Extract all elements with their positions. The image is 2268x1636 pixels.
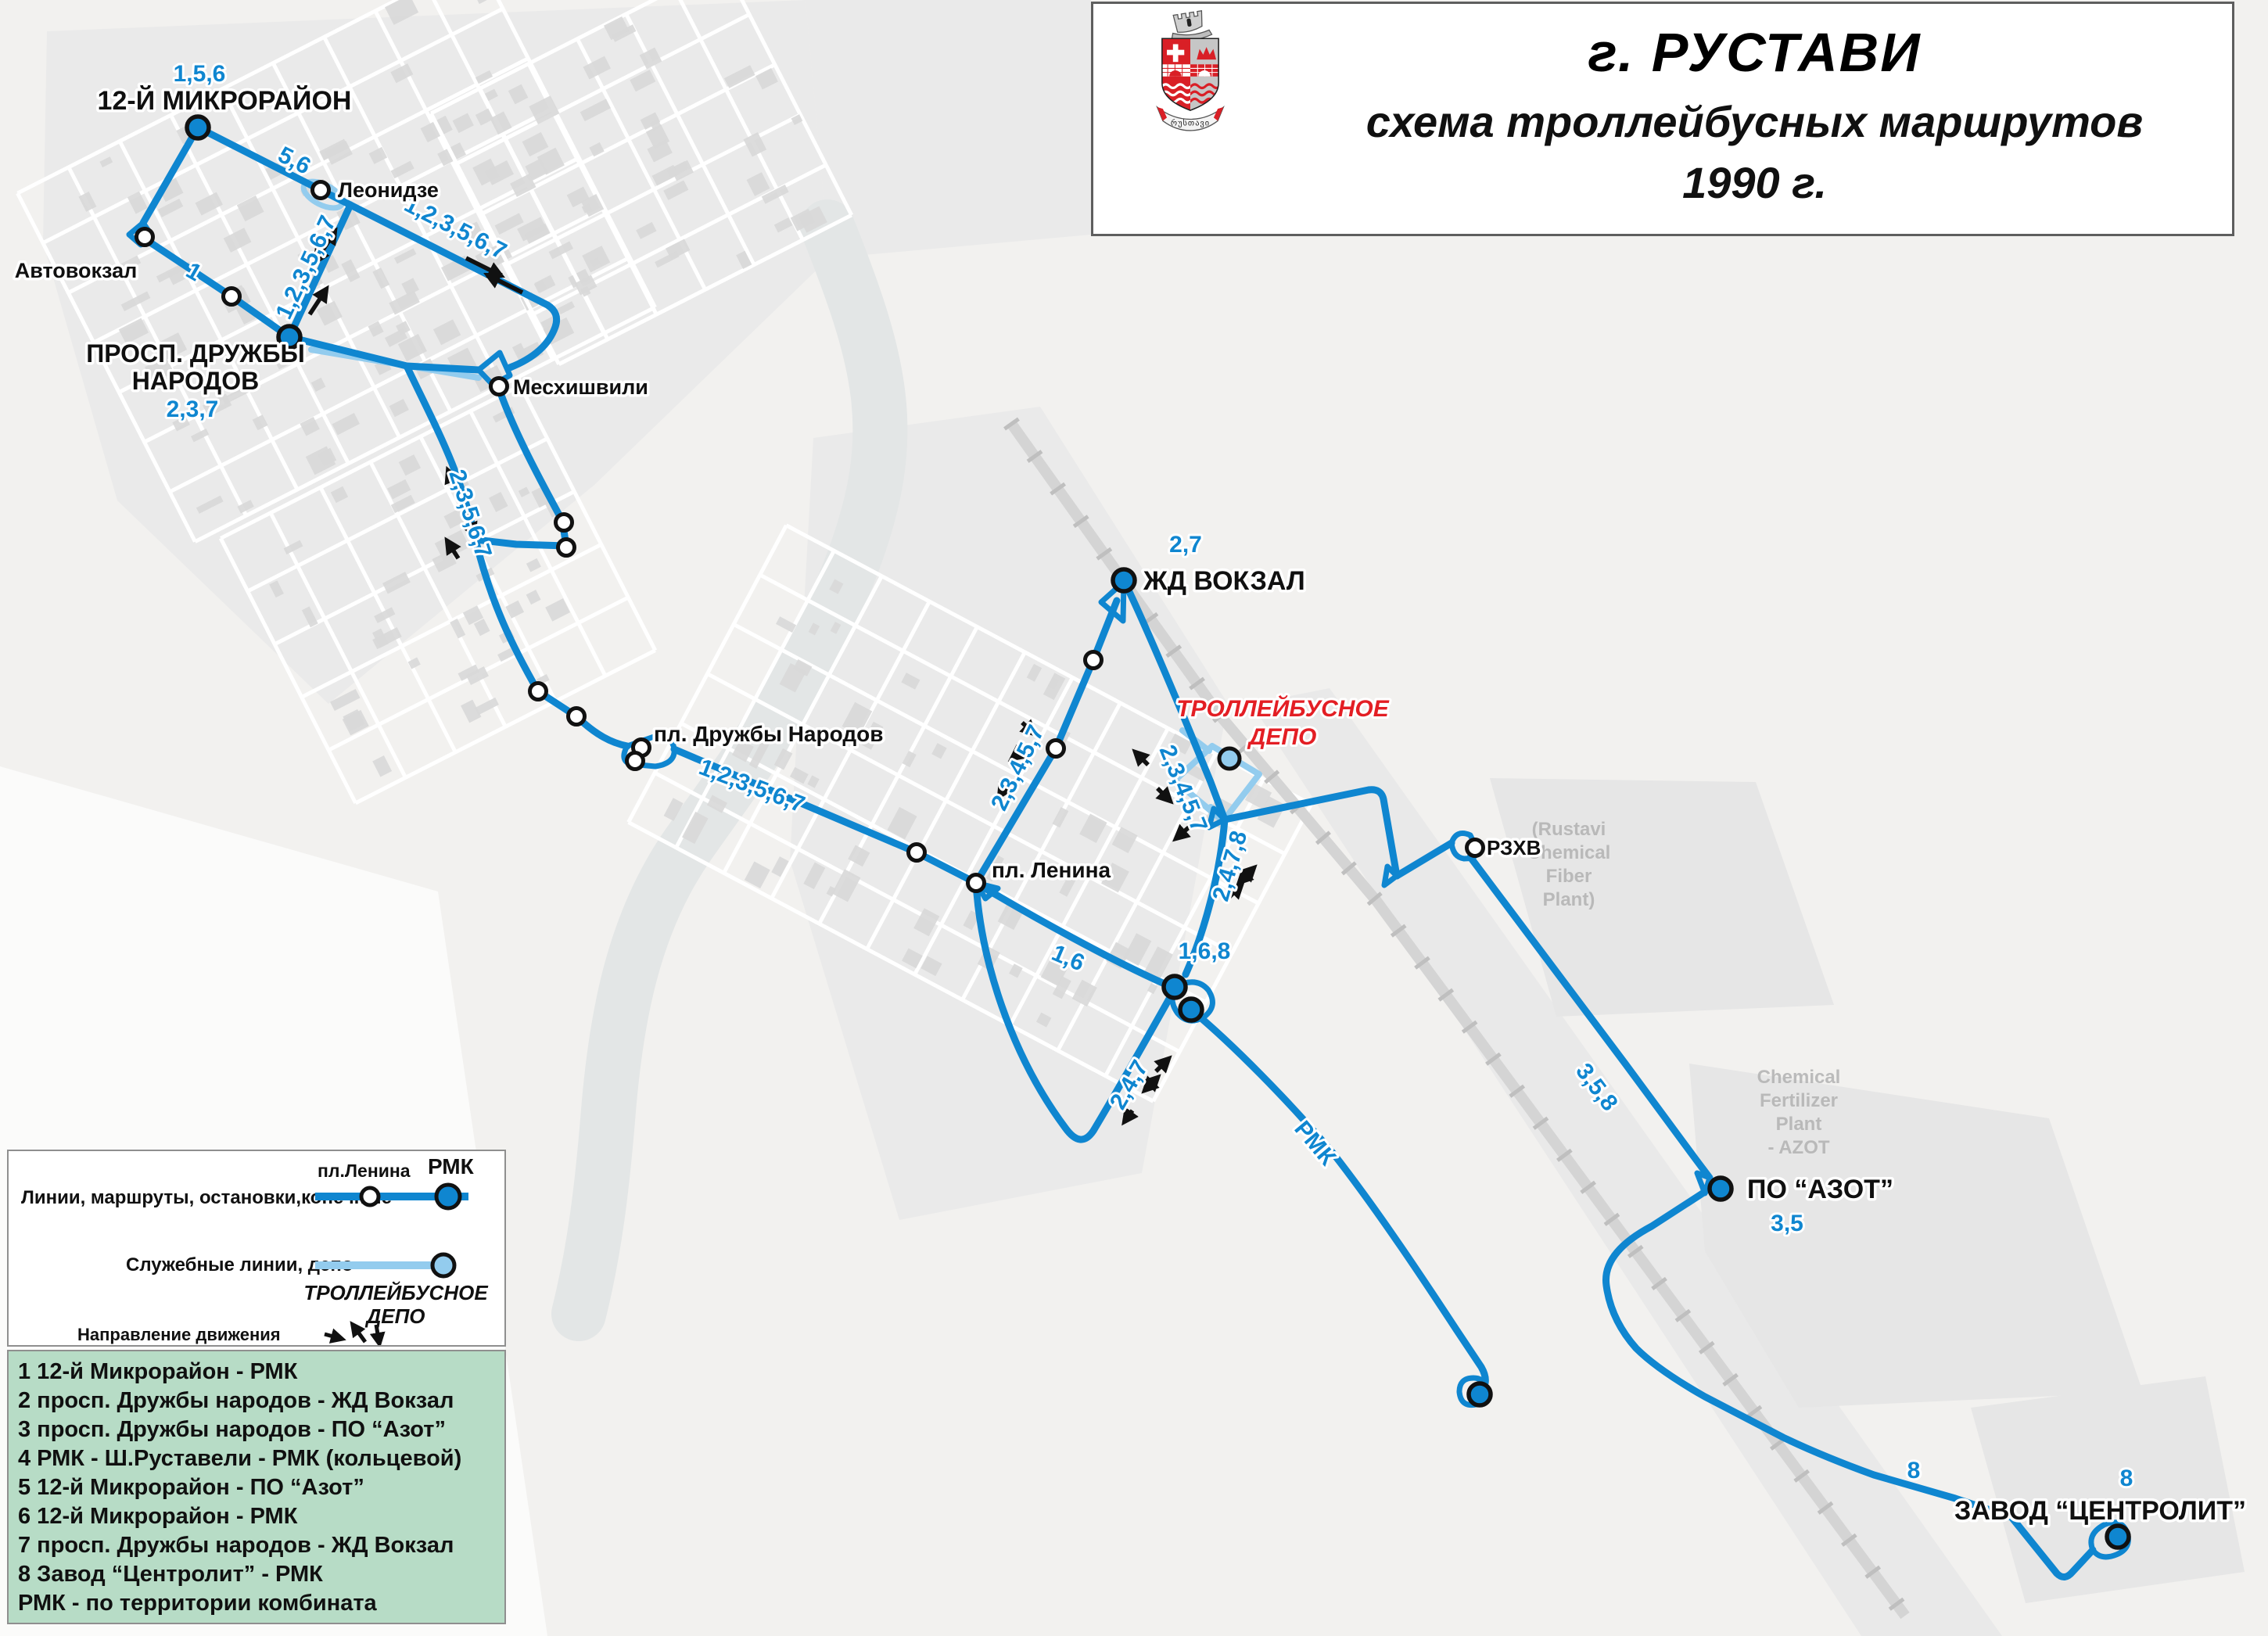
- stop-stop-5: [569, 709, 585, 725]
- route-list-item: 8 Завод “Центролит” - РМК: [18, 1560, 495, 1589]
- station-label-prosp-line1: ПРОСП. ДРУЖБЫ: [86, 339, 305, 368]
- route-list-item: 4 РМК - Ш.Руставели - РМК (кольцевой): [18, 1444, 495, 1473]
- area-label-rcfp-line3: Fiber: [1546, 866, 1592, 887]
- route-list-item: 5 12-й Микрорайон - ПО “Азот”: [18, 1473, 495, 1502]
- terminal-po-azot: [1710, 1178, 1732, 1200]
- legend-stop-icon: [361, 1188, 379, 1205]
- station-label-meskhishvili: Месхишвили: [513, 375, 648, 399]
- route-list-item: 1 12-й Микрорайон - РМК: [18, 1358, 495, 1387]
- legend-box: Линии, маршруты, остановки,конечные пл.Л…: [7, 1150, 506, 1347]
- route-label-r8-b: 8: [2120, 1466, 2133, 1491]
- station-label-mkr-12: 12-Й МИКРОРАЙОН: [98, 85, 352, 116]
- stop-meskhishvili: [491, 379, 508, 395]
- page-subtitle: схема троллейбусных маршрутов: [1289, 96, 2220, 147]
- terminal-rmk-2: [1180, 999, 1202, 1021]
- stop-stop-2: [556, 515, 572, 531]
- terminal-zavod-centrolit: [2107, 1526, 2129, 1548]
- page-year: 1990 г.: [1289, 157, 2220, 208]
- stop-stop-8: [1086, 652, 1102, 669]
- area-label-cfp-line1: Chemical: [1757, 1067, 1841, 1088]
- stop-stop-1: [224, 289, 240, 305]
- area-label-cfp-line4: - AZOT: [1767, 1137, 1829, 1158]
- route-label-r156: 1,5,6: [174, 61, 226, 87]
- title-box: რუსთავი г. РУСТАВИ схема троллейбусных м…: [1091, 2, 2234, 236]
- stop-avtovokzal: [137, 229, 153, 246]
- depot-label-line2: ДЕПО: [1247, 724, 1317, 750]
- depot-label-line1: ТРОЛЛЕЙБУСНОЕ: [1176, 694, 1390, 722]
- station-label-rzhv: РЗХВ: [1487, 836, 1541, 859]
- route-list: 1 12-й Микрорайон - РМК2 просп. Дружбы н…: [7, 1350, 506, 1624]
- stop-rzhv: [1467, 840, 1484, 856]
- stop-stop-6: [909, 845, 925, 861]
- station-label-prosp-line2: НАРОДОВ: [132, 367, 259, 395]
- route-label-r8-a: 8: [1907, 1458, 1921, 1484]
- station-label-pl-druzhby: пл. Дружбы Народов: [654, 722, 883, 746]
- trolleybus-map-page: (RustaviChemicalFiberPlant)ChemicalFerti…: [0, 0, 2268, 1636]
- stop-stop-3: [558, 540, 575, 556]
- route-list-item: 7 просп. Дружбы народов - ЖД Вокзал: [18, 1531, 495, 1560]
- stop-leonidze: [313, 182, 329, 199]
- page-title: г. РУСТАВИ: [1289, 21, 2220, 84]
- route-list-item: 6 12-й Микрорайон - РМК: [18, 1502, 495, 1531]
- station-label-po-azot: ПО “АЗОТ”: [1747, 1175, 1893, 1204]
- legend-direction-arrows-icon: [325, 1325, 379, 1344]
- terminal-mkr-12: [187, 117, 209, 138]
- terminal-kombinat-end: [1469, 1383, 1491, 1405]
- route-label-r35: 3,5: [1771, 1211, 1803, 1236]
- coat-ribbon-text: რუსთავი: [1171, 119, 1210, 128]
- legend-terminal-icon: [436, 1185, 460, 1208]
- area-label-cfp-line2: Fertilizer: [1760, 1090, 1838, 1111]
- route-list-item: 3 просп. Дружбы народов - ПО “Азот”: [18, 1415, 495, 1444]
- station-label-pl-lenina: пл. Ленина: [992, 858, 1111, 882]
- terminal-rmk: [1164, 976, 1186, 998]
- stop-stop-4: [530, 683, 547, 700]
- route-label-r237: 2,3,7: [167, 396, 219, 422]
- area-label-rcfp-line4: Plant): [1543, 889, 1595, 910]
- legend-graphics: [9, 1151, 504, 1345]
- stop-pl-druzhby-b: [627, 753, 644, 770]
- stop-pl-lenina: [968, 875, 985, 892]
- route-label-r168: 1,6,8: [1179, 938, 1231, 964]
- station-label-avtovokzal: Автовокзал: [15, 259, 138, 282]
- route-list-item: 2 просп. Дружбы народов - ЖД Вокзал: [18, 1387, 495, 1415]
- area-label-cfp-line3: Plant: [1776, 1114, 1822, 1135]
- coat-bridge-icon: [1162, 64, 1218, 76]
- route-label-r27: 2,7: [1169, 532, 1202, 558]
- terminal-zhd-vokzal: [1113, 569, 1135, 591]
- route-list-item: РМК - по территории комбината: [18, 1589, 495, 1618]
- station-label-zhd-vokzal: ЖД ВОКЗАЛ: [1143, 566, 1305, 596]
- rustavi-coat-of-arms: რუსთავი: [1150, 7, 1231, 132]
- legend-depot-icon: [432, 1254, 454, 1276]
- station-label-leonidze: Леонидзе: [338, 178, 439, 202]
- depot-icon: [1219, 748, 1240, 769]
- station-label-zavod-centrolit: ЗАВОД “ЦЕНТРОЛИТ”: [1954, 1496, 2246, 1526]
- area-label-rcfp-line1: (Rustavi: [1532, 819, 1606, 840]
- stop-stop-7: [1048, 741, 1064, 757]
